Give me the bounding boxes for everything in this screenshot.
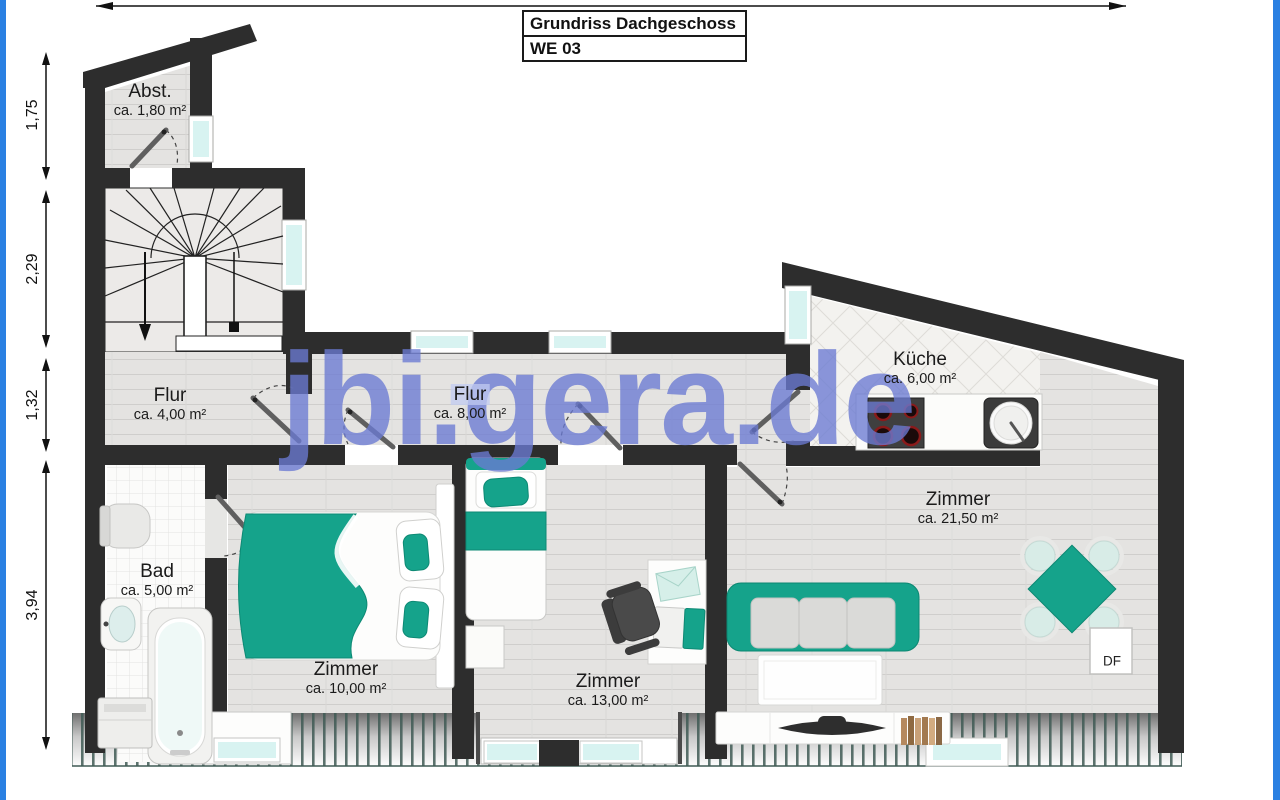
right-outer-wall [1158, 368, 1184, 748]
room-label-zimmer13: Zimmerca. 13,00 m² [568, 671, 649, 709]
window [487, 744, 537, 760]
bathtub-icon [148, 608, 212, 764]
coffee-table [758, 655, 882, 705]
dimension-label-1: 1,75 [24, 99, 42, 130]
dining-set [1022, 538, 1122, 640]
washbasin-icon [101, 598, 141, 650]
sofa [727, 583, 919, 651]
window [193, 121, 209, 157]
unit-number: WE 03 [524, 37, 745, 60]
window [933, 744, 1001, 760]
room-label-zimmer21: Zimmerca. 21,50 m² [918, 489, 999, 527]
right-border [1273, 0, 1280, 800]
kitchen-sink-icon [984, 398, 1038, 448]
watermark: jbi.gera.de [281, 333, 914, 464]
window [583, 744, 639, 760]
single-bed [466, 458, 546, 620]
roof-window-label: DF [1103, 654, 1121, 669]
double-bed [239, 484, 455, 688]
room-label-zimmer10: Zimmerca. 10,00 m² [306, 659, 387, 697]
nightstand [466, 626, 504, 668]
tv-lowboard [716, 712, 950, 745]
window [218, 742, 276, 758]
washing-machine-icon [98, 698, 152, 748]
dimension-label-4: 3,94 [24, 589, 42, 620]
floorplan-page: jbi.gera.de Abst.ca. 1,80 m² Flurca. 4,0… [0, 0, 1280, 800]
bad-right-wall [205, 465, 227, 499]
title-block: Grundriss Dachgeschoss WE 03 [522, 10, 747, 62]
room-label-kueche: Kücheca. 6,00 m² [884, 349, 957, 387]
window [286, 225, 302, 285]
room-label-abst: Abst.ca. 1,80 m² [114, 81, 187, 119]
toilet-icon [100, 504, 150, 548]
dimension-label-3: 1,32 [24, 389, 42, 420]
room-label-flur8: Flurca. 8,00 m² [434, 384, 507, 422]
plan-title: Grundriss Dachgeschoss [524, 12, 745, 37]
room-label-bad: Badca. 5,00 m² [121, 561, 194, 599]
room-label-flur4: Flurca. 4,00 m² [134, 385, 207, 423]
wall-z13-z21 [705, 465, 727, 715]
dimension-label-2: 2,29 [24, 253, 42, 284]
left-border [0, 0, 6, 800]
